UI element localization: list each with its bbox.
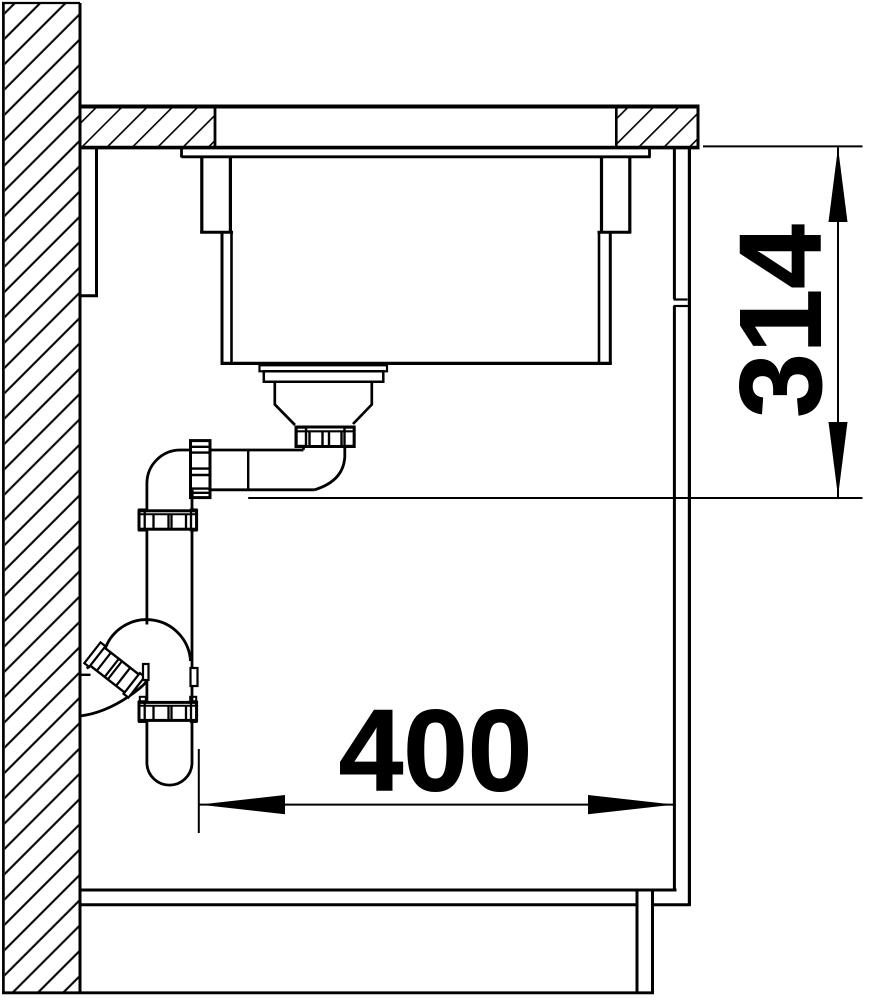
svg-text:400: 400 [339,686,533,816]
svg-text:314: 314 [716,224,846,418]
